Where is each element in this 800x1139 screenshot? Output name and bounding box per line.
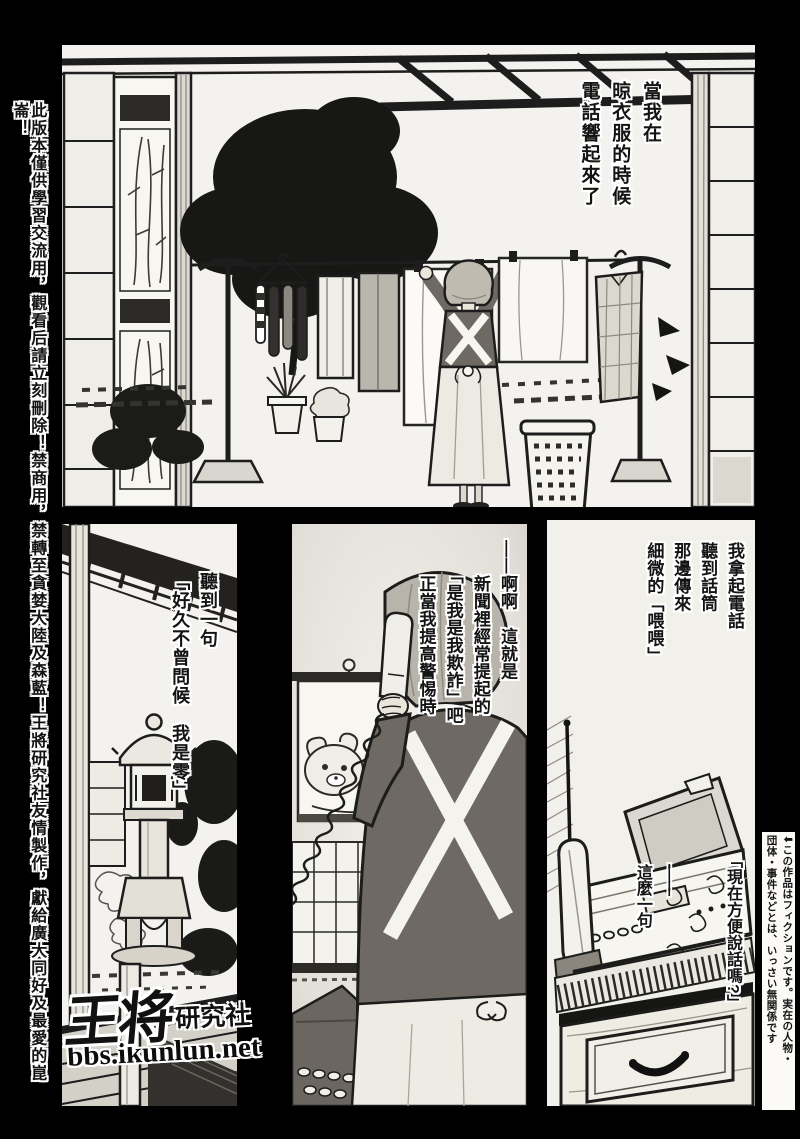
narration-fax: 我拿起電話 聽到話筒 那邊傳來 細微的「喂喂」 xyxy=(640,542,747,665)
scanlation-logo: 王将 研究社 bbs.ikunlun.net xyxy=(64,986,261,1074)
panel-fax-phone: 我拿起電話 聽到話筒 那邊傳來 細微的「喂喂」 「現在方便說話嗎?」 —— 這麼… xyxy=(547,520,755,1106)
laundry-basket xyxy=(521,421,594,507)
panel-laundry-yard: 當我在 晾衣服的時候 電話響起來了 xyxy=(62,45,755,507)
shoji-door-right xyxy=(709,73,755,507)
garden-fence xyxy=(89,762,125,866)
logo-brand-main: 王将 xyxy=(63,990,174,1049)
left-margin-disclaimer: 此版本僅供學習交流用，觀看后請立刻刪除！禁商用，禁轉至貪婪大陸及森藍！王將研究社… xyxy=(10,102,45,1112)
post-right xyxy=(692,73,709,507)
narration-lantern: 聽到一句 「好久不曾問候 我是零」 xyxy=(165,572,221,800)
manga-page: 此版本僅供學習交流用，觀看后請立刻刪除！禁商用，禁轉至貪婪大陸及森藍！王將研究社… xyxy=(0,0,800,1139)
narration-laundry: 當我在 晾衣服的時候 電話響起來了 xyxy=(573,81,665,207)
hanging-towel-right xyxy=(499,250,587,362)
speech-phone-voice: 「現在方便說話嗎?」 xyxy=(719,852,745,1011)
right-margin-disclaimer: ⬇この作品はフィクションです。実在の人物・ 団体・事件などとは、いっさい無関係で… xyxy=(763,835,795,1107)
right-margin-disclaimer-box: ⬇この作品はフィクションです。実在の人物・ 団体・事件などとは、いっさい無関係で… xyxy=(760,830,797,1112)
phone-handset xyxy=(380,613,412,698)
narration-phone-call: ——啊啊 這就是 新聞裡經常提起的 「是我是我欺詐」吧 正當我提高警惕時 xyxy=(412,540,521,724)
panel-answering-phone: ——啊啊 這就是 新聞裡經常提起的 「是我是我欺詐」吧 正當我提高警惕時 xyxy=(292,524,527,1106)
pole-base-left xyxy=(194,461,262,482)
caption-this-phrase: —— 這麼一句 xyxy=(629,864,683,928)
logo-brand-sub: 研究社 xyxy=(174,995,251,1035)
hanging-towels xyxy=(318,273,399,391)
